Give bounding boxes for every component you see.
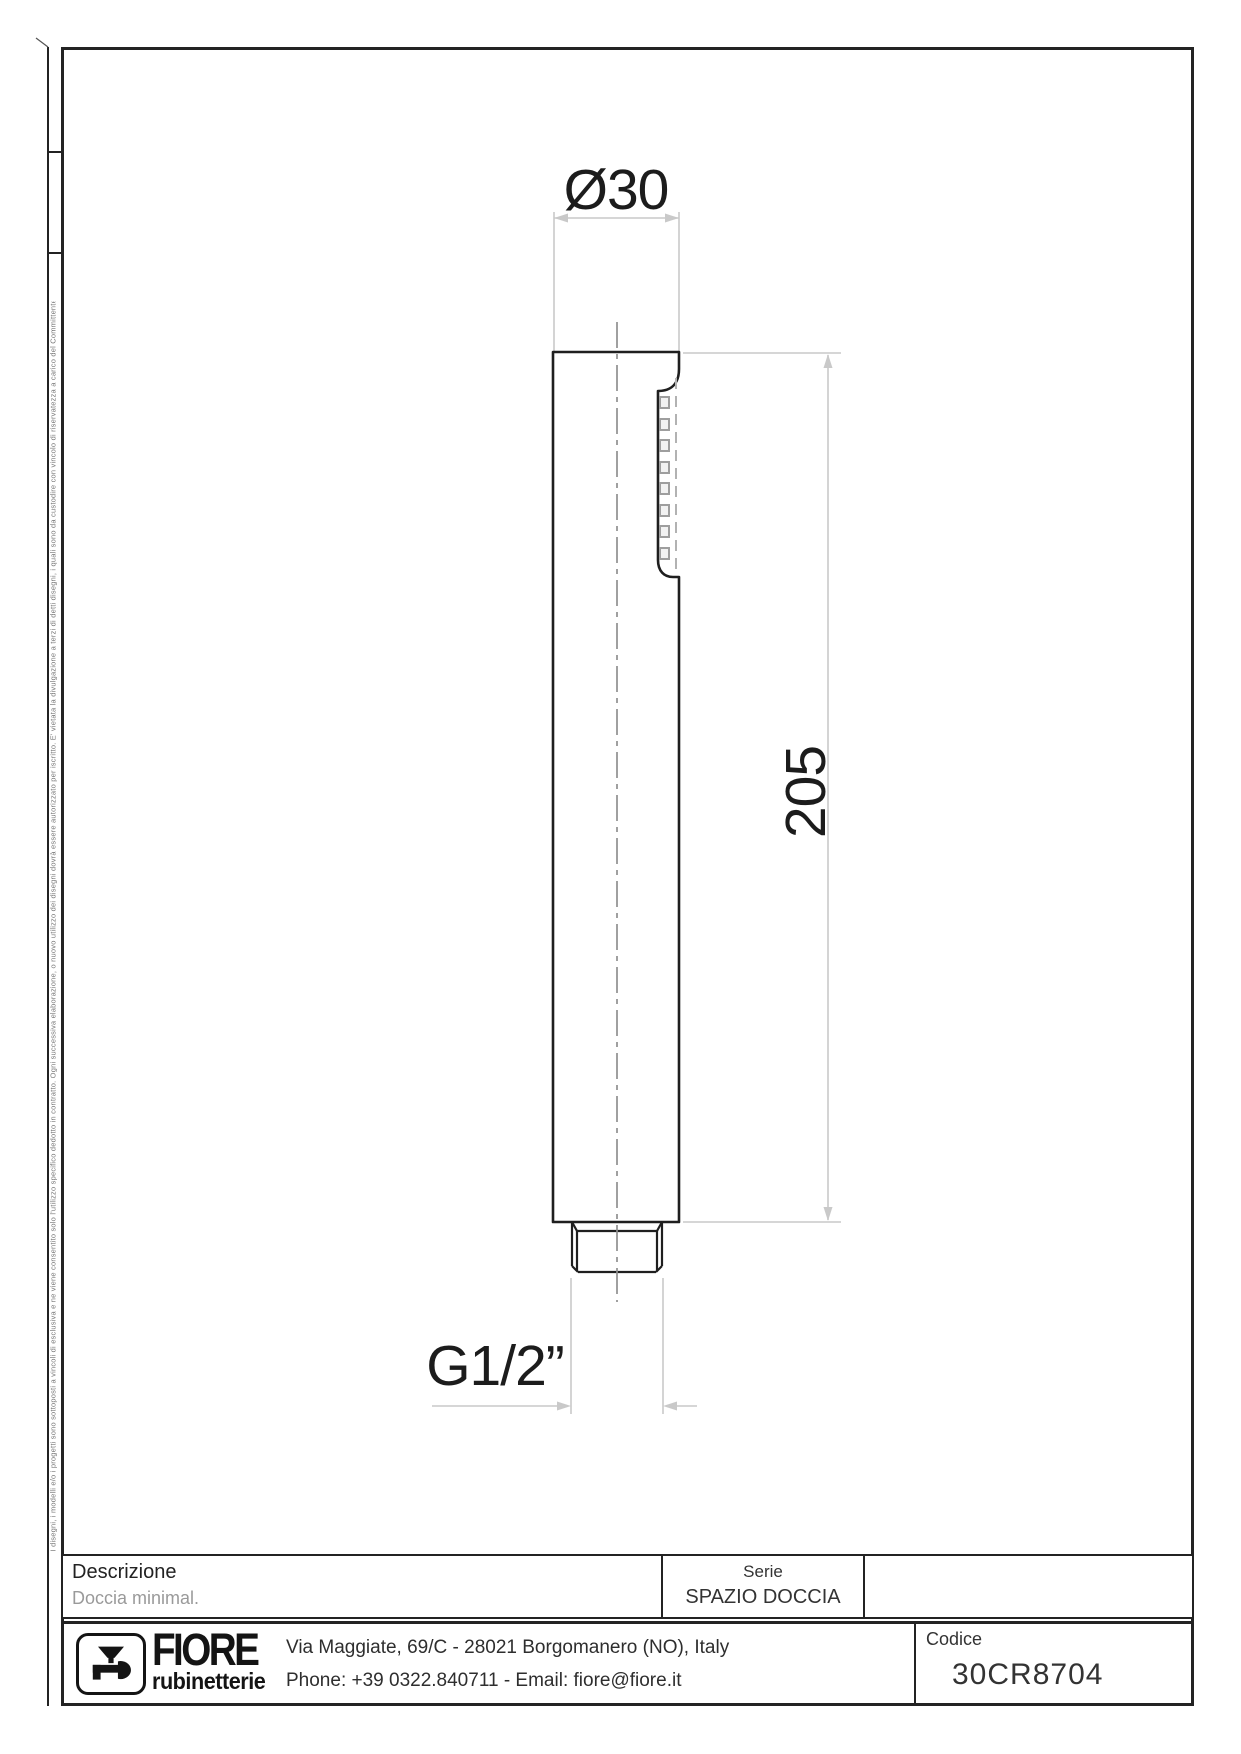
nozzle-grid: [660, 397, 669, 559]
brand-address-cell: FIORE rubinetterie Via Maggiate, 69/C - …: [64, 1624, 916, 1703]
faucet-icon: [85, 1641, 137, 1687]
brand-text: FIORE rubinetterie: [152, 1632, 274, 1696]
dimension-thread-label: G1/2”: [370, 1338, 620, 1395]
title-block-row2: FIORE rubinetterie Via Maggiate, 69/C - …: [61, 1621, 1194, 1706]
dimension-diameter-label: Ø30: [491, 162, 741, 219]
company-address: Via Maggiate, 69/C - 28021 Borgomanero (…: [286, 1631, 729, 1697]
description-value: Doccia minimal.: [72, 1588, 652, 1609]
title-block-row1: Descrizione Doccia minimal. Serie SPAZIO…: [61, 1554, 1194, 1619]
fiore-logo: [76, 1633, 146, 1695]
code-label: Codice: [926, 1629, 1191, 1650]
dimension-height-label: 205: [776, 712, 836, 872]
code-cell: Codice 30CR8704: [916, 1624, 1191, 1703]
series-value: SPAZIO DOCCIA: [663, 1586, 863, 1609]
brand-name: FIORE: [152, 1632, 257, 1669]
code-value: 30CR8704: [926, 1658, 1191, 1692]
drawing-canvas: [0, 0, 1241, 1754]
trim-mark: [36, 38, 48, 47]
address-line2: Phone: +39 0322.840711 - Email: fiore@fi…: [286, 1664, 729, 1697]
address-line1: Via Maggiate, 69/C - 28021 Borgomanero (…: [286, 1631, 729, 1664]
brand-subtitle: rubinetterie: [152, 1668, 267, 1695]
series-label: Serie: [663, 1562, 863, 1582]
series-cell: Serie SPAZIO DOCCIA: [663, 1556, 865, 1617]
description-label: Descrizione: [72, 1561, 652, 1584]
description-cell: Descrizione Doccia minimal.: [63, 1556, 663, 1617]
technical-drawing-sheet: { "drawing": { "dim_diameter": "Ø30", "d…: [0, 0, 1241, 1754]
empty-cell: [865, 1556, 1192, 1617]
